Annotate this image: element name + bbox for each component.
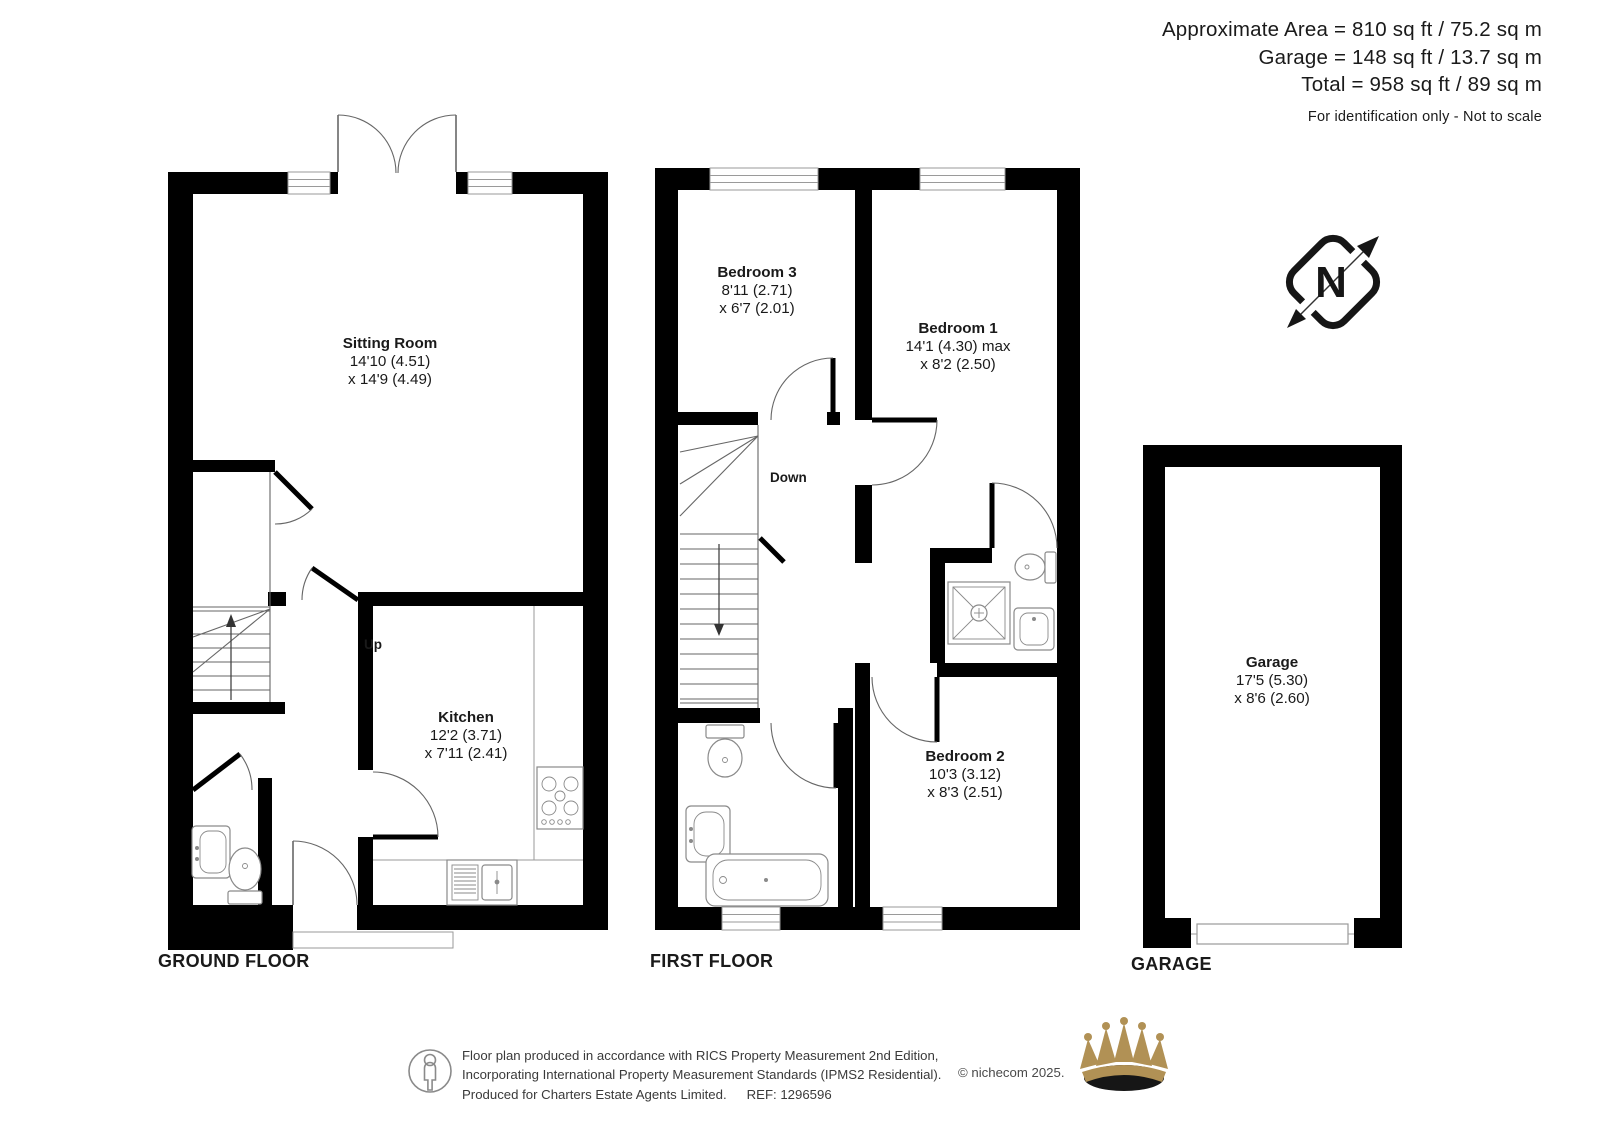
north-arrow-compass-icon: N: [1263, 212, 1403, 352]
approximate-area-line: Approximate Area = 810 sq ft / 75.2 sq m: [1162, 16, 1542, 44]
room-label-kitchen: Kitchen 12'2 (3.71) x 7'11 (2.41): [425, 709, 508, 763]
hob-icon: [537, 767, 583, 829]
room-label-bedroom-2: Bedroom 2 10'3 (3.12) x 8'3 (2.51): [925, 748, 1004, 802]
room-label-bedroom-3: Bedroom 3 8'11 (2.71) x 6'7 (2.01): [717, 264, 796, 318]
kitchen-sink-icon: [447, 860, 517, 905]
scale-disclaimer: For identification only - Not to scale: [1162, 104, 1542, 132]
shower-icon: [948, 582, 1010, 644]
footer-line-1: Floor plan produced in accordance with R…: [462, 1046, 941, 1065]
reference-number: REF: 1296596: [747, 1085, 832, 1104]
garage-door: [1191, 924, 1354, 944]
crown-logo: [1074, 1014, 1174, 1094]
bath-icon: [706, 854, 828, 906]
total-area-line: Total = 958 sq ft / 89 sq m: [1162, 71, 1542, 99]
ensuite-toilet-icon: [1015, 552, 1056, 583]
ground-floor-walls: [168, 172, 608, 950]
french-doors: [338, 115, 456, 173]
down-arrow-icon: [714, 624, 724, 636]
ground-floor-stairs: [193, 472, 270, 702]
person-icon: [407, 1041, 453, 1101]
wc-toilet-icon: [228, 848, 262, 904]
ground-floor-title: GROUND FLOOR: [158, 951, 310, 972]
first-floor-doors: [760, 358, 1057, 788]
garage-area-line: Garage = 148 sq ft / 13.7 sq m: [1162, 44, 1542, 72]
front-porch-step: [293, 932, 453, 948]
wc-basin-icon: [192, 826, 230, 878]
up-arrow-icon: [226, 614, 236, 627]
stairs-down-label: Down: [770, 470, 807, 485]
room-label-sitting-room: Sitting Room 14'10 (4.51) x 14'9 (4.49): [343, 335, 437, 389]
bathroom-toilet-icon: [706, 725, 744, 777]
ground-floor-plan: [160, 110, 610, 950]
room-label-garage: Garage 17'5 (5.30) x 8'6 (2.60): [1234, 654, 1310, 708]
footer-line-2: Incorporating International Property Mea…: [462, 1065, 941, 1084]
footer-disclaimer: Floor plan produced in accordance with R…: [462, 1046, 941, 1104]
ensuite-basin-icon: [1014, 608, 1054, 650]
nichecom-copyright: © nichecom 2025.: [958, 1065, 1065, 1080]
first-floor-title: FIRST FLOOR: [650, 951, 773, 972]
first-floor-stairs: [680, 425, 758, 708]
first-floor-plan: [650, 158, 1085, 933]
room-label-bedroom-1: Bedroom 1 14'1 (4.30) max x 8'2 (2.50): [905, 320, 1010, 374]
area-summary: Approximate Area = 810 sq ft / 75.2 sq m…: [1162, 16, 1542, 131]
ground-floor-windows: [288, 172, 512, 194]
footer-line-3: Produced for Charters Estate Agents Limi…: [462, 1085, 941, 1104]
compass-north-label: N: [1315, 258, 1347, 307]
garage-title: GARAGE: [1131, 954, 1212, 975]
stairs-up-label: Up: [364, 637, 382, 652]
